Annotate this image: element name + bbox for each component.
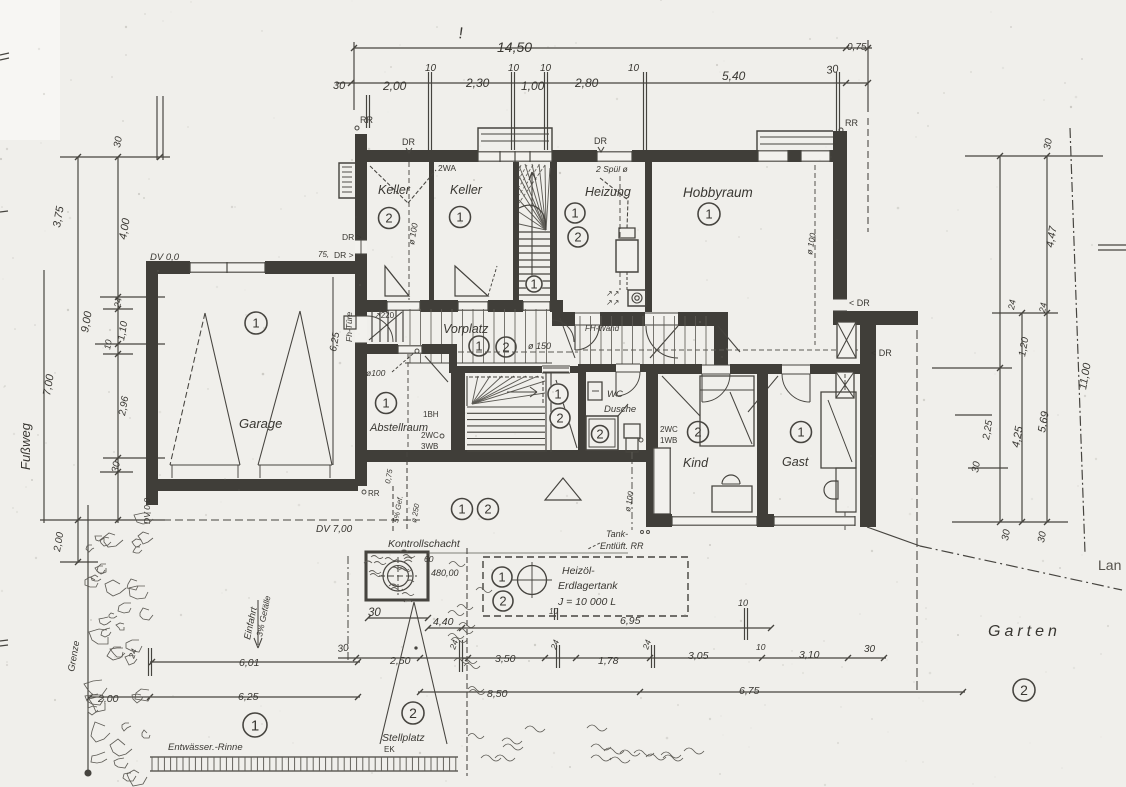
svg-text:1: 1 — [456, 210, 463, 225]
svg-text:1BH: 1BH — [423, 410, 439, 419]
svg-text:Gast: Gast — [782, 455, 809, 469]
svg-text:Entwässer.-Rinne: Entwässer.-Rinne — [168, 742, 243, 753]
svg-text:ø 150: ø 150 — [528, 341, 551, 351]
svg-text:FH-Wand: FH-Wand — [585, 324, 620, 333]
svg-text:10: 10 — [628, 63, 640, 74]
svg-text:1: 1 — [498, 570, 505, 585]
svg-text:1: 1 — [530, 277, 537, 292]
svg-text:5,40: 5,40 — [722, 69, 746, 83]
svg-text:Tank-: Tank- — [606, 529, 628, 539]
svg-text:3,10: 3,10 — [799, 649, 820, 661]
svg-text:< DR: < DR — [871, 348, 892, 358]
svg-text:8,50: 8,50 — [487, 688, 508, 700]
svg-text:1: 1 — [571, 206, 578, 221]
svg-text:10: 10 — [425, 63, 437, 74]
svg-text:RR: RR — [368, 489, 380, 498]
svg-text:WC: WC — [607, 389, 623, 400]
svg-text:Erdlagertank: Erdlagertank — [558, 580, 618, 592]
svg-text:Lan: Lan — [1098, 557, 1121, 573]
svg-text:Garage: Garage — [239, 416, 282, 431]
svg-text:10: 10 — [756, 642, 766, 652]
svg-text:1: 1 — [705, 207, 712, 222]
svg-text:Hobbyraum: Hobbyraum — [683, 185, 753, 200]
svg-text:2: 2 — [574, 230, 581, 245]
svg-text:< DR: < DR — [849, 298, 870, 308]
svg-text:10: 10 — [549, 607, 558, 616]
svg-text:1: 1 — [251, 717, 259, 734]
svg-text:RR: RR — [360, 115, 373, 125]
svg-text:30: 30 — [368, 607, 381, 619]
svg-text:10: 10 — [738, 598, 748, 608]
svg-text:2WA: 2WA — [438, 163, 456, 173]
svg-text:10: 10 — [508, 63, 520, 74]
svg-text:Kontrollschacht: Kontrollschacht — [388, 538, 461, 550]
svg-text:24: 24 — [1037, 302, 1049, 315]
svg-text:6,95: 6,95 — [620, 615, 641, 627]
svg-text:Heizöl-: Heizöl- — [562, 565, 595, 577]
svg-text:30: 30 — [864, 644, 876, 655]
svg-text:2: 2 — [1020, 682, 1028, 698]
svg-text:2: 2 — [596, 427, 603, 442]
svg-text:J = 10 000 L: J = 10 000 L — [557, 596, 616, 608]
svg-text:1: 1 — [382, 396, 389, 411]
svg-text:1,00: 1,00 — [521, 79, 545, 93]
svg-text:2: 2 — [385, 211, 392, 226]
svg-text:DV 0,0: DV 0,0 — [150, 252, 180, 263]
svg-text:24: 24 — [1006, 299, 1018, 312]
svg-text:6,01: 6,01 — [239, 657, 259, 669]
svg-text:DR: DR — [402, 137, 415, 147]
svg-text:EK: EK — [384, 745, 395, 754]
svg-text:Vorplatz: Vorplatz — [443, 322, 489, 336]
svg-text:Garten: Garten — [988, 623, 1061, 640]
svg-text:75,: 75, — [318, 250, 329, 259]
svg-text:480,00: 480,00 — [431, 568, 459, 578]
svg-text:1: 1 — [554, 387, 561, 402]
svg-text:14,50: 14,50 — [497, 39, 532, 55]
svg-text:6,25: 6,25 — [238, 691, 259, 703]
svg-text:Kind: Kind — [683, 456, 709, 470]
svg-text:2: 2 — [556, 411, 563, 426]
svg-text:RR: RR — [845, 118, 858, 128]
svg-text:DR >: DR > — [342, 232, 362, 242]
svg-text:2,30: 2,30 — [465, 76, 490, 90]
svg-text:2: 2 — [499, 594, 506, 609]
svg-text:0,75: 0,75 — [847, 42, 867, 53]
svg-text:10: 10 — [540, 63, 552, 74]
svg-text:DV 7,00: DV 7,00 — [316, 524, 353, 535]
svg-text:Fußweg: Fußweg — [18, 422, 33, 470]
svg-text:↗↗: ↗↗ — [606, 289, 619, 298]
svg-text:4,40: 4,40 — [433, 616, 454, 628]
svg-text:2 Spül ø: 2 Spül ø — [595, 164, 628, 174]
svg-text:DR >: DR > — [334, 250, 354, 260]
svg-text:2: 2 — [484, 502, 491, 517]
svg-text:3,05: 3,05 — [688, 650, 709, 662]
svg-text:2: 2 — [409, 705, 417, 721]
svg-text:↗220: ↗220 — [374, 311, 395, 320]
svg-text:Keller: Keller — [378, 183, 411, 197]
svg-text:Keller: Keller — [450, 183, 483, 197]
svg-text:Stellplatz: Stellplatz — [382, 732, 425, 744]
svg-text:10: 10 — [102, 339, 114, 351]
svg-text:60: 60 — [424, 554, 434, 564]
svg-text:1WB: 1WB — [660, 436, 677, 445]
svg-text:1: 1 — [797, 425, 804, 440]
svg-text:1: 1 — [252, 316, 259, 331]
svg-text:DR: DR — [594, 136, 607, 146]
svg-text:2WC: 2WC — [421, 431, 439, 440]
svg-text:1: 1 — [458, 502, 465, 517]
svg-text:6,75: 6,75 — [739, 685, 760, 697]
svg-text:↗↗: ↗↗ — [606, 298, 619, 307]
svg-text:Abstellraum: Abstellraum — [369, 422, 428, 434]
svg-text:Fh-Türe: Fh-Türe — [344, 312, 354, 343]
svg-text:DV 0,0: DV 0,0 — [142, 498, 152, 524]
svg-text:ø100: ø100 — [366, 368, 386, 378]
svg-text:24: 24 — [112, 297, 124, 310]
svg-text:1: 1 — [475, 339, 482, 354]
svg-text:Entlüft. RR: Entlüft. RR — [600, 541, 644, 551]
svg-text:3,50: 3,50 — [495, 653, 516, 665]
svg-text:3WB: 3WB — [421, 442, 438, 451]
svg-text:30: 30 — [333, 80, 346, 92]
svg-text:2,00: 2,00 — [382, 79, 407, 93]
svg-text:1,78: 1,78 — [598, 655, 619, 667]
svg-text:2,80: 2,80 — [574, 76, 599, 90]
svg-text:2WC: 2WC — [660, 425, 678, 434]
